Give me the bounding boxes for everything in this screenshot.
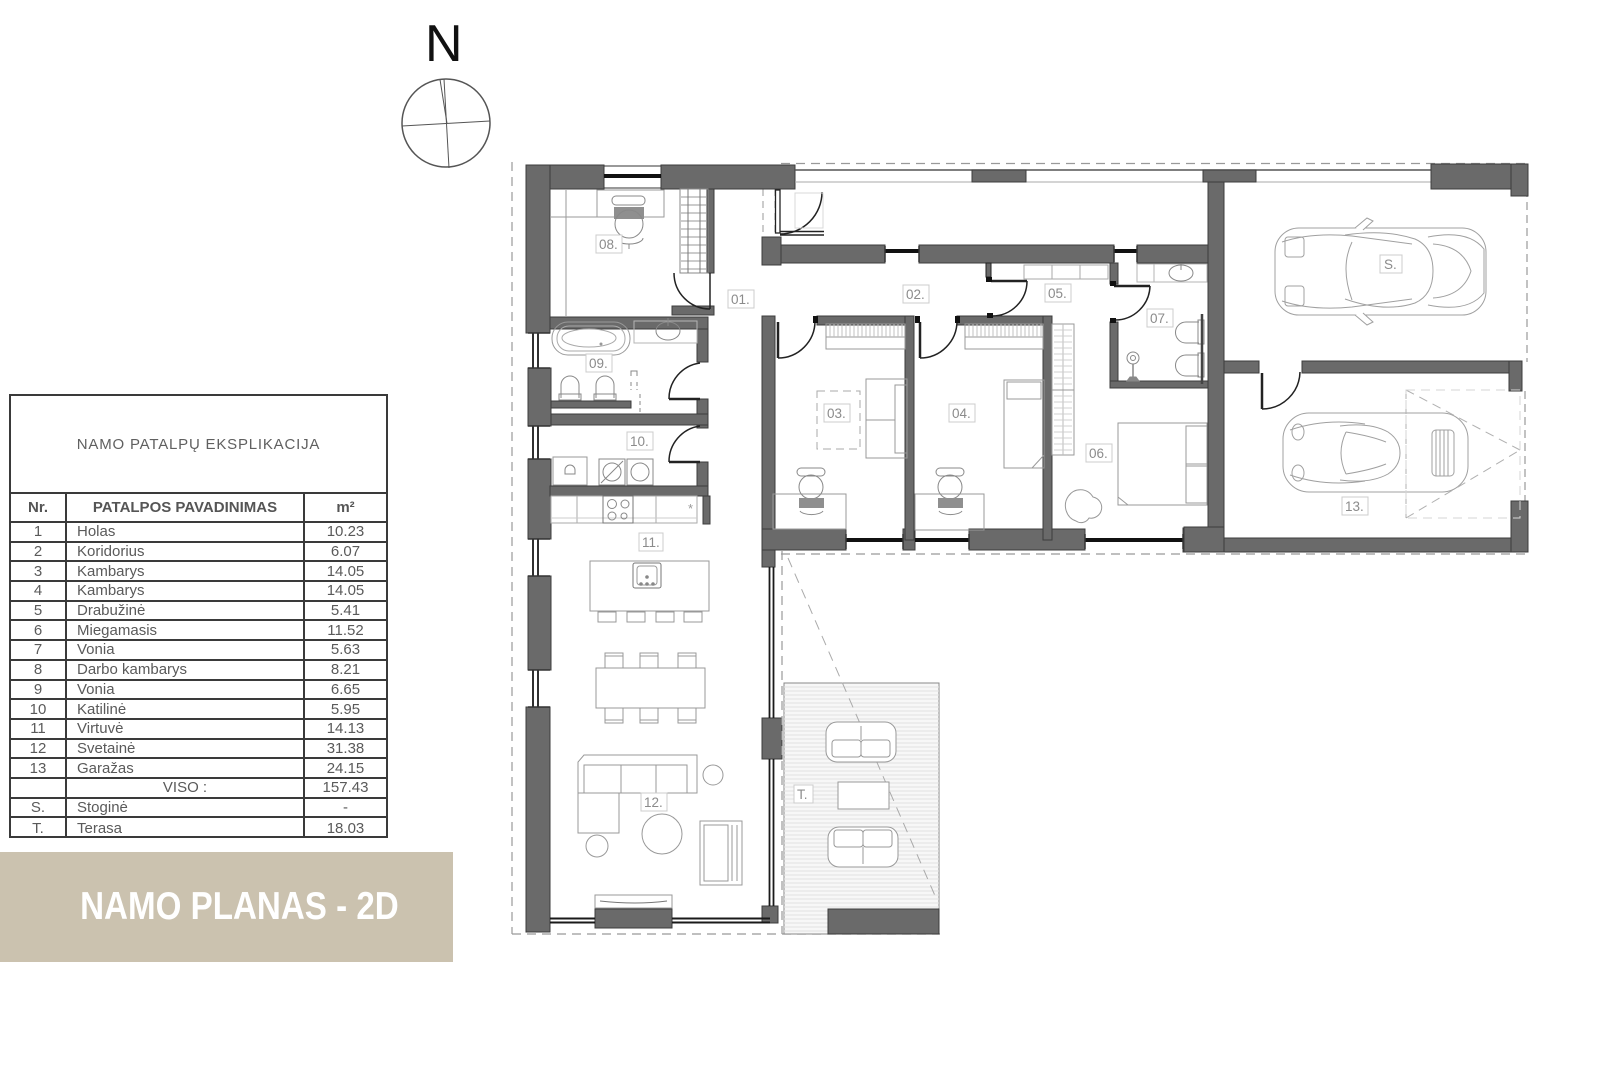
svg-text:03.: 03.	[827, 406, 846, 421]
svg-text:05.: 05.	[1048, 286, 1067, 301]
svg-text:10.: 10.	[630, 434, 649, 449]
svg-text:07.: 07.	[1150, 311, 1169, 326]
svg-text:*: *	[688, 501, 693, 516]
svg-text:04.: 04.	[952, 406, 971, 421]
svg-text:T.: T.	[797, 787, 808, 802]
svg-text:13.: 13.	[1345, 499, 1364, 514]
svg-text:12.: 12.	[644, 795, 663, 810]
svg-text:S.: S.	[1384, 257, 1397, 272]
svg-text:08.: 08.	[599, 237, 618, 252]
svg-text:N: N	[425, 15, 463, 73]
svg-text:06.: 06.	[1089, 446, 1108, 461]
svg-text:02.: 02.	[906, 287, 925, 302]
svg-text:01.: 01.	[731, 292, 750, 307]
svg-text:09.: 09.	[589, 356, 608, 371]
svg-text:11.: 11.	[642, 535, 660, 550]
